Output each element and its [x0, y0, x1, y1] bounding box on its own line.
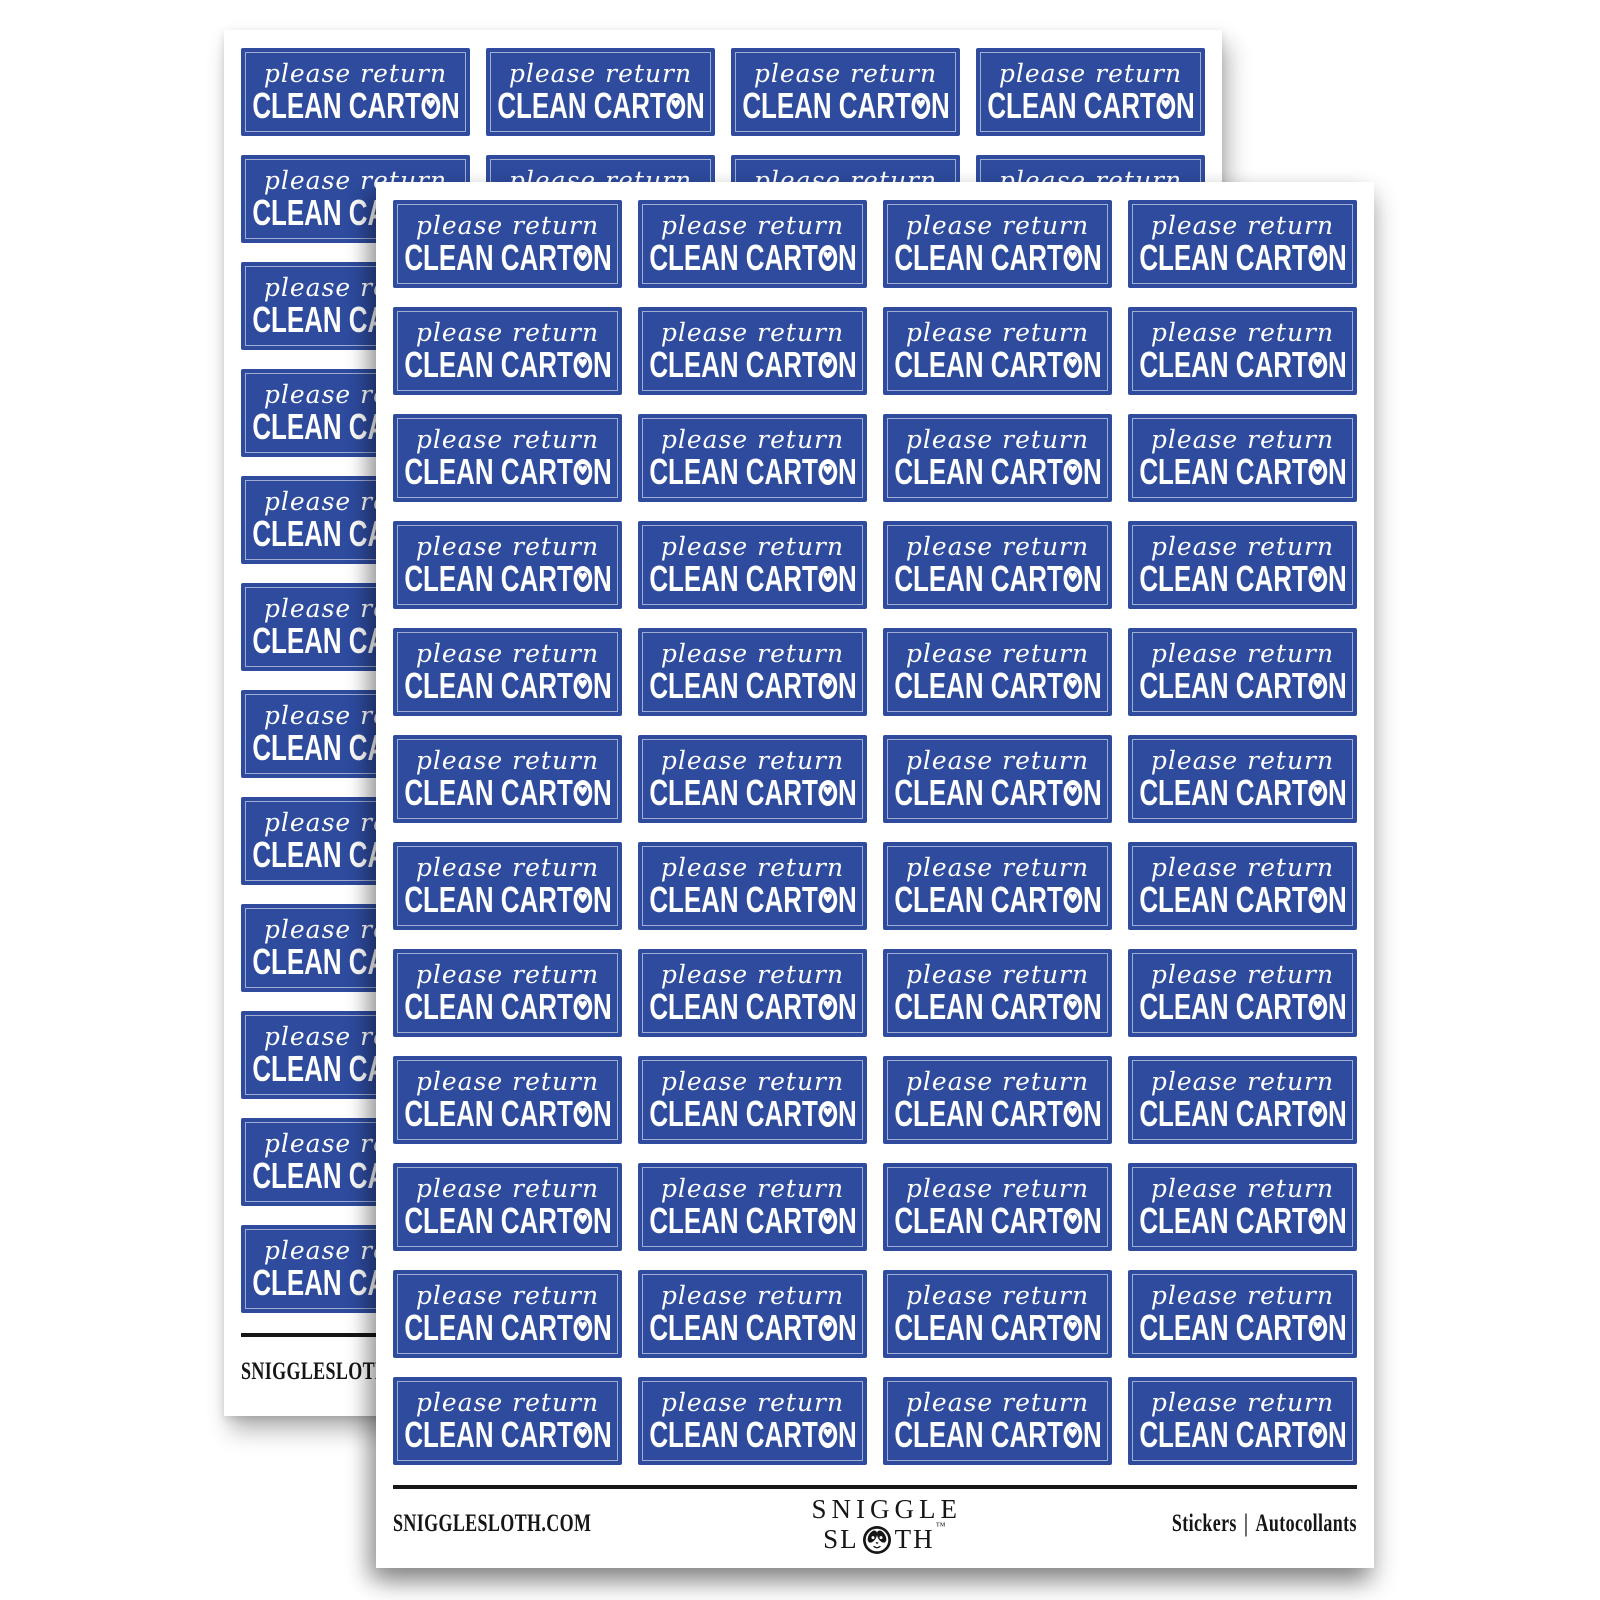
sticker-main-text-left: CLEAN CART [894, 1310, 1062, 1346]
sticker-main-text-left: CLEAN CART [894, 989, 1062, 1025]
heart-icon: ♥ [822, 679, 832, 692]
sticker-main-text-right: N [837, 1096, 856, 1132]
sticker-main-text: CLEAN CART♥N [404, 1203, 611, 1239]
heart-in-o-icon: ♥ [818, 994, 837, 1020]
sticker-main-text-left: CLEAN CART [252, 88, 420, 124]
sticker-script-text: please return [1151, 855, 1334, 880]
sticker-script-text: please return [661, 213, 844, 238]
heart-icon: ♥ [1067, 1214, 1077, 1227]
heart-icon: ♥ [1312, 893, 1322, 906]
sticker-main-text-right: N [592, 1310, 611, 1346]
sticker-script-text: please return [661, 1390, 844, 1415]
heart-icon: ♥ [1312, 251, 1322, 264]
heart-icon: ♥ [1312, 358, 1322, 371]
sticker: please return CLEAN CART♥N [883, 307, 1112, 395]
sticker: please return CLEAN CART♥N [638, 1056, 867, 1144]
heart-in-o-icon: ♥ [573, 352, 592, 378]
heart-in-o-icon: ♥ [1308, 1101, 1327, 1127]
heart-in-o-icon: ♥ [1308, 245, 1327, 271]
sticker-main-text: CLEAN CART♥N [1139, 1417, 1346, 1453]
sticker: please return CLEAN CART♥N [393, 307, 622, 395]
heart-icon: ♥ [425, 99, 435, 112]
sticker-script-text: please return [906, 1283, 1089, 1308]
sticker-script-text: please return [264, 61, 447, 86]
sticker-main-text-left: CLEAN CART [649, 454, 817, 490]
sticker-script-text: please return [906, 320, 1089, 345]
heart-icon: ♥ [1067, 1321, 1077, 1334]
sticker-main-text-left: CLEAN CART [649, 882, 817, 918]
sticker-main-text: CLEAN CART♥N [404, 668, 611, 704]
sticker-main-text-left: CLEAN CART [987, 88, 1155, 124]
sticker: please return CLEAN CART♥N [638, 735, 867, 823]
sticker-main-text-right: N [1082, 989, 1101, 1025]
sticker-script-text: please return [416, 1283, 599, 1308]
sticker-main-text-left: CLEAN CART [894, 347, 1062, 383]
sticker: please return CLEAN CART♥N [883, 521, 1112, 609]
sticker-main-text-right: N [1327, 1203, 1346, 1239]
sticker-main-text-left: CLEAN CART [404, 1096, 572, 1132]
sticker-main-text-right: N [837, 240, 856, 276]
sticker-script-text: please return [906, 1390, 1089, 1415]
logo-word-sniggle: SNIGGLE [807, 1496, 963, 1523]
logo-sloth-right: TH [895, 1526, 935, 1553]
sticker-script-text: please return [416, 427, 599, 452]
sticker-main-text-left: CLEAN CART [1139, 882, 1307, 918]
sticker-main-text: CLEAN CART♥N [1139, 1096, 1346, 1132]
heart-in-o-icon: ♥ [573, 1101, 592, 1127]
sticker-main-text: CLEAN CART♥N [894, 454, 1101, 490]
sticker-main-text: CLEAN CART♥N [894, 347, 1101, 383]
sticker: please return CLEAN CART♥N [638, 200, 867, 288]
sticker: please return CLEAN CART♥N [883, 414, 1112, 502]
sticker-main-text-right: N [1082, 775, 1101, 811]
sticker-script-text: please return [906, 855, 1089, 880]
sticker: please return CLEAN CART♥N [883, 1163, 1112, 1251]
sticker-script-text: please return [906, 641, 1089, 666]
sticker: please return CLEAN CART♥N [638, 628, 867, 716]
sticker-main-text: CLEAN CART♥N [1139, 775, 1346, 811]
sticker-script-text: please return [661, 962, 844, 987]
sticker-script-text: please return [661, 748, 844, 773]
heart-in-o-icon: ♥ [818, 245, 837, 271]
sticker-main-text-left: CLEAN CART [404, 989, 572, 1025]
sticker-main-text-right: N [592, 775, 611, 811]
heart-in-o-icon: ♥ [1063, 994, 1082, 1020]
sticker: please return CLEAN CART♥N [638, 1163, 867, 1251]
sticker-main-text-right: N [1327, 1096, 1346, 1132]
sticker-script-text: please return [1151, 534, 1334, 559]
sticker-type-label: Stickers | Autocollants [1172, 1510, 1357, 1538]
sticker-main-text-right: N [837, 1417, 856, 1453]
sticker: please return CLEAN CART♥N [1128, 842, 1357, 930]
heart-icon: ♥ [822, 358, 832, 371]
heart-in-o-icon: ♥ [1063, 1208, 1082, 1234]
heart-icon: ♥ [1067, 251, 1077, 264]
sheet-footer: SNIGGLESLOTH.COM SNIGGLE SL TH [393, 1485, 1357, 1559]
sticker-main-text: CLEAN CART♥N [649, 989, 856, 1025]
sticker-script-text: please return [416, 855, 599, 880]
heart-in-o-icon: ♥ [818, 1422, 837, 1448]
sticker: please return CLEAN CART♥N [1128, 414, 1357, 502]
sticker-main-text-right: N [1327, 882, 1346, 918]
sticker: please return CLEAN CART♥N [638, 307, 867, 395]
heart-in-o-icon: ♥ [1063, 459, 1082, 485]
heart-in-o-icon: ♥ [818, 1315, 837, 1341]
sticker: please return CLEAN CART♥N [1128, 1163, 1357, 1251]
label-stickers-fr: Autocollants [1256, 1510, 1357, 1538]
sticker-main-text-right: N [1327, 1417, 1346, 1453]
sticker-main-text-right: N [1082, 1310, 1101, 1346]
website-url: SNIGGLESLOTH.COM [393, 1510, 591, 1538]
sticker-main-text-right: N [592, 454, 611, 490]
sticker: please return CLEAN CART♥N [1128, 628, 1357, 716]
sticker-main-text: CLEAN CART♥N [649, 668, 856, 704]
sticker-main-text-right: N [837, 347, 856, 383]
sticker-main-text-left: CLEAN CART [649, 989, 817, 1025]
heart-icon: ♥ [577, 465, 587, 478]
heart-icon: ♥ [1312, 1428, 1322, 1441]
sticker-main-text-left: CLEAN CART [894, 454, 1062, 490]
sticker-main-text-right: N [1082, 1203, 1101, 1239]
heart-in-o-icon: ♥ [1063, 1101, 1082, 1127]
heart-in-o-icon: ♥ [1308, 1422, 1327, 1448]
sticker-script-text: please return [416, 641, 599, 666]
heart-icon: ♥ [577, 1107, 587, 1120]
sticker-main-text: CLEAN CART♥N [894, 668, 1101, 704]
sticker-main-text: CLEAN CART♥N [742, 88, 949, 124]
heart-icon: ♥ [1067, 358, 1077, 371]
sticker: please return CLEAN CART♥N [1128, 200, 1357, 288]
sticker-script-text: please return [509, 61, 692, 86]
sticker: please return CLEAN CART♥N [393, 521, 622, 609]
sticker-script-text: please return [1151, 1283, 1334, 1308]
heart-in-o-icon: ♥ [573, 887, 592, 913]
sticker: please return CLEAN CART♥N [883, 842, 1112, 930]
sticker-main-text-right: N [837, 668, 856, 704]
heart-in-o-icon: ♥ [1063, 245, 1082, 271]
sticker: please return CLEAN CART♥N [883, 735, 1112, 823]
heart-icon: ♥ [1160, 99, 1170, 112]
heart-in-o-icon: ♥ [666, 93, 685, 119]
sticker-main-text-right: N [1082, 1096, 1101, 1132]
sticker-main-text-right: N [1327, 240, 1346, 276]
sticker-main-text-left: CLEAN CART [894, 668, 1062, 704]
sticker-main-text-left: CLEAN CART [404, 882, 572, 918]
sticker-main-text: CLEAN CART♥N [894, 1310, 1101, 1346]
heart-icon: ♥ [577, 679, 587, 692]
sticker-script-text: please return [1151, 213, 1334, 238]
sticker: please return CLEAN CART♥N [393, 1056, 622, 1144]
heart-in-o-icon: ♥ [573, 245, 592, 271]
heart-icon: ♥ [822, 1321, 832, 1334]
sticker-script-text: please return [1151, 1069, 1334, 1094]
heart-in-o-icon: ♥ [1063, 352, 1082, 378]
sticker-main-text-left: CLEAN CART [404, 454, 572, 490]
sticker-main-text-right: N [1327, 347, 1346, 383]
sticker-main-text-right: N [837, 989, 856, 1025]
sticker-script-text: please return [1151, 641, 1334, 666]
sticker-script-text: please return [661, 641, 844, 666]
sticker-main-text: CLEAN CART♥N [649, 347, 856, 383]
logo-word-sloth: SL TH ™ [807, 1525, 963, 1555]
heart-in-o-icon: ♥ [573, 673, 592, 699]
heart-icon: ♥ [577, 358, 587, 371]
heart-in-o-icon: ♥ [818, 459, 837, 485]
heart-icon: ♥ [577, 251, 587, 264]
sticker-main-text-left: CLEAN CART [649, 1203, 817, 1239]
sticker: please return CLEAN CART♥N [883, 949, 1112, 1037]
sticker-script-text: please return [661, 855, 844, 880]
sticker-main-text-right: N [1082, 668, 1101, 704]
sticker: please return CLEAN CART♥N [393, 842, 622, 930]
sticker-main-text-left: CLEAN CART [404, 1203, 572, 1239]
sticker: please return CLEAN CART♥N [883, 200, 1112, 288]
footer-row: SNIGGLESLOTH.COM SNIGGLE SL TH [393, 1489, 1357, 1559]
sticker-main-text-left: CLEAN CART [894, 775, 1062, 811]
heart-icon: ♥ [1312, 1107, 1322, 1120]
sticker: please return CLEAN CART♥N [638, 1377, 867, 1465]
heart-icon: ♥ [1312, 679, 1322, 692]
sticker-main-text-left: CLEAN CART [404, 561, 572, 597]
heart-in-o-icon: ♥ [1308, 352, 1327, 378]
sticker-main-text-left: CLEAN CART [649, 347, 817, 383]
sticker-main-text-right: N [592, 1096, 611, 1132]
heart-icon: ♥ [1312, 1214, 1322, 1227]
sticker: please return CLEAN CART♥N [1128, 949, 1357, 1037]
heart-icon: ♥ [1067, 572, 1077, 585]
sticker-main-text: CLEAN CART♥N [404, 240, 611, 276]
heart-icon: ♥ [1067, 1000, 1077, 1013]
heart-icon: ♥ [822, 893, 832, 906]
sticker-main-text-right: N [837, 1310, 856, 1346]
sticker-main-text-right: N [1082, 1417, 1101, 1453]
sticker-main-text-right: N [1175, 88, 1194, 124]
sticker-main-text-left: CLEAN CART [649, 775, 817, 811]
sticker: please return CLEAN CART♥N [883, 628, 1112, 716]
sticker-script-text: please return [906, 962, 1089, 987]
heart-icon: ♥ [577, 1321, 587, 1334]
sticker-main-text: CLEAN CART♥N [1139, 668, 1346, 704]
sticker-main-text-left: CLEAN CART [404, 1310, 572, 1346]
sticker-main-text: CLEAN CART♥N [894, 1203, 1101, 1239]
sticker-main-text-left: CLEAN CART [649, 1096, 817, 1132]
sticker: please return CLEAN CART♥N [883, 1377, 1112, 1465]
heart-in-o-icon: ♥ [911, 93, 930, 119]
heart-in-o-icon: ♥ [1308, 994, 1327, 1020]
sticker: please return CLEAN CART♥N [1128, 1377, 1357, 1465]
heart-icon: ♥ [1067, 679, 1077, 692]
heart-in-o-icon: ♥ [1063, 1315, 1082, 1341]
sticker-main-text: CLEAN CART♥N [894, 561, 1101, 597]
sticker: please return CLEAN CART♥N [393, 1270, 622, 1358]
sticker-main-text: CLEAN CART♥N [649, 1310, 856, 1346]
sticker-main-text-right: N [685, 88, 704, 124]
sticker-script-text: please return [661, 1176, 844, 1201]
sticker-main-text: CLEAN CART♥N [894, 240, 1101, 276]
heart-icon: ♥ [1067, 1107, 1077, 1120]
sticker-script-text: please return [906, 427, 1089, 452]
sticker-main-text-left: CLEAN CART [894, 1096, 1062, 1132]
sticker-main-text: CLEAN CART♥N [894, 1096, 1101, 1132]
heart-in-o-icon: ♥ [1308, 780, 1327, 806]
sticker-main-text-right: N [592, 347, 611, 383]
sticker-main-text: CLEAN CART♥N [404, 882, 611, 918]
heart-in-o-icon: ♥ [573, 780, 592, 806]
sticker-main-text-left: CLEAN CART [649, 1417, 817, 1453]
heart-icon: ♥ [1067, 1428, 1077, 1441]
sticker-main-text-right: N [592, 1203, 611, 1239]
sticker-main-text: CLEAN CART♥N [894, 989, 1101, 1025]
heart-in-o-icon: ♥ [1156, 93, 1175, 119]
sticker-main-text-right: N [592, 1417, 611, 1453]
sticker-main-text: CLEAN CART♥N [1139, 561, 1346, 597]
sticker: please return CLEAN CART♥N [1128, 735, 1357, 823]
sticker-main-text-left: CLEAN CART [894, 1203, 1062, 1239]
sticker-main-text-right: N [1327, 1310, 1346, 1346]
heart-in-o-icon: ♥ [1308, 887, 1327, 913]
sticker-script-text: please return [416, 1390, 599, 1415]
sticker-main-text-left: CLEAN CART [1139, 1096, 1307, 1132]
sticker: please return CLEAN CART♥N [1128, 1270, 1357, 1358]
sticker-main-text: CLEAN CART♥N [649, 1203, 856, 1239]
sticker-main-text-left: CLEAN CART [1139, 240, 1307, 276]
heart-icon: ♥ [1312, 1321, 1322, 1334]
sticker-main-text: CLEAN CART♥N [894, 775, 1101, 811]
sticker-main-text-right: N [837, 1203, 856, 1239]
sticker-main-text-right: N [1327, 561, 1346, 597]
sticker: please return CLEAN CART♥N [393, 949, 622, 1037]
heart-icon: ♥ [822, 1428, 832, 1441]
sticker-main-text: CLEAN CART♥N [1139, 1203, 1346, 1239]
sticker-script-text: please return [906, 748, 1089, 773]
sticker-main-text-left: CLEAN CART [894, 240, 1062, 276]
heart-in-o-icon: ♥ [818, 1208, 837, 1234]
heart-icon: ♥ [822, 251, 832, 264]
sticker: please return CLEAN CART♥N [883, 1056, 1112, 1144]
sticker-main-text: CLEAN CART♥N [649, 775, 856, 811]
heart-icon: ♥ [1067, 893, 1077, 906]
sticker: please return CLEAN CART♥N [883, 1270, 1112, 1358]
heart-in-o-icon: ♥ [1063, 566, 1082, 592]
label-separator: | [1244, 1510, 1248, 1538]
heart-icon: ♥ [915, 99, 925, 112]
sticker: please return CLEAN CART♥N [241, 48, 470, 136]
sticker-script-text: please return [1151, 427, 1334, 452]
label-stickers-en: Stickers [1172, 1510, 1237, 1538]
sticker-main-text-left: CLEAN CART [404, 240, 572, 276]
sticker-main-text-right: N [837, 775, 856, 811]
sticker-main-text-right: N [592, 882, 611, 918]
sticker-main-text-right: N [1327, 775, 1346, 811]
heart-in-o-icon: ♥ [1308, 459, 1327, 485]
heart-icon: ♥ [577, 1000, 587, 1013]
sticker-script-text: please return [1151, 962, 1334, 987]
heart-icon: ♥ [822, 1107, 832, 1120]
heart-in-o-icon: ♥ [1308, 673, 1327, 699]
product-image: please return CLEAN CART♥N please return… [0, 0, 1600, 1600]
sticker-main-text-right: N [1082, 561, 1101, 597]
sticker-main-text-left: CLEAN CART [404, 775, 572, 811]
heart-in-o-icon: ♥ [1063, 673, 1082, 699]
sticker-main-text-left: CLEAN CART [1139, 347, 1307, 383]
sticker-script-text: please return [416, 748, 599, 773]
sticker-main-text: CLEAN CART♥N [649, 882, 856, 918]
sticker-main-text: CLEAN CART♥N [649, 1417, 856, 1453]
sticker-main-text-left: CLEAN CART [649, 1310, 817, 1346]
sticker-main-text: CLEAN CART♥N [649, 240, 856, 276]
heart-in-o-icon: ♥ [573, 1422, 592, 1448]
heart-icon: ♥ [1312, 786, 1322, 799]
sticker-main-text-right: N [837, 561, 856, 597]
sticker-main-text-left: CLEAN CART [404, 668, 572, 704]
heart-in-o-icon: ♥ [818, 352, 837, 378]
sticker-script-text: please return [906, 1069, 1089, 1094]
sticker: please return CLEAN CART♥N [731, 48, 960, 136]
heart-icon: ♥ [1067, 786, 1077, 799]
sticker-script-text: please return [906, 534, 1089, 559]
sticker-main-text-left: CLEAN CART [894, 561, 1062, 597]
sticker-main-text: CLEAN CART♥N [987, 88, 1194, 124]
sticker: please return CLEAN CART♥N [393, 735, 622, 823]
sticker-main-text-left: CLEAN CART [894, 1417, 1062, 1453]
heart-icon: ♥ [577, 572, 587, 585]
sticker-main-text-right: N [837, 454, 856, 490]
sticker-main-text-left: CLEAN CART [1139, 668, 1307, 704]
sticker: please return CLEAN CART♥N [638, 521, 867, 609]
sticker-main-text: CLEAN CART♥N [1139, 347, 1346, 383]
sticker-script-text: please return [416, 213, 599, 238]
sticker-script-text: please return [661, 320, 844, 345]
sticker-main-text-right: N [592, 240, 611, 276]
sticker-main-text-right: N [1327, 989, 1346, 1025]
sticker-script-text: please return [1151, 1176, 1334, 1201]
heart-in-o-icon: ♥ [573, 1208, 592, 1234]
sticker-main-text-left: CLEAN CART [1139, 775, 1307, 811]
heart-icon: ♥ [822, 572, 832, 585]
sticker-main-text: CLEAN CART♥N [649, 1096, 856, 1132]
heart-in-o-icon: ♥ [818, 887, 837, 913]
sticker: please return CLEAN CART♥N [1128, 521, 1357, 609]
heart-in-o-icon: ♥ [1308, 1315, 1327, 1341]
heart-icon: ♥ [1312, 1000, 1322, 1013]
heart-icon: ♥ [577, 1214, 587, 1227]
heart-icon: ♥ [577, 1428, 587, 1441]
heart-in-o-icon: ♥ [573, 994, 592, 1020]
sticker-main-text-right: N [1327, 454, 1346, 490]
sticker: please return CLEAN CART♥N [393, 414, 622, 502]
heart-icon: ♥ [822, 465, 832, 478]
sticker-main-text: CLEAN CART♥N [894, 1417, 1101, 1453]
sticker-main-text-left: CLEAN CART [404, 347, 572, 383]
sticker-main-text: CLEAN CART♥N [497, 88, 704, 124]
sticker-main-text-left: CLEAN CART [404, 1417, 572, 1453]
sticker: please return CLEAN CART♥N [638, 949, 867, 1037]
sticker-script-text: please return [906, 1176, 1089, 1201]
sticker-main-text-right: N [837, 882, 856, 918]
sticker-script-text: please return [661, 1283, 844, 1308]
sticker: please return CLEAN CART♥N [638, 842, 867, 930]
heart-icon: ♥ [1312, 572, 1322, 585]
heart-in-o-icon: ♥ [818, 1101, 837, 1127]
sticker-script-text: please return [416, 1069, 599, 1094]
heart-in-o-icon: ♥ [1063, 1422, 1082, 1448]
sticker-main-text-left: CLEAN CART [894, 882, 1062, 918]
heart-icon: ♥ [822, 1000, 832, 1013]
sticker-main-text: CLEAN CART♥N [1139, 1310, 1346, 1346]
sloth-face-icon [862, 1525, 892, 1555]
sticker: please return CLEAN CART♥N [393, 200, 622, 288]
sticker-main-text-right: N [1082, 240, 1101, 276]
